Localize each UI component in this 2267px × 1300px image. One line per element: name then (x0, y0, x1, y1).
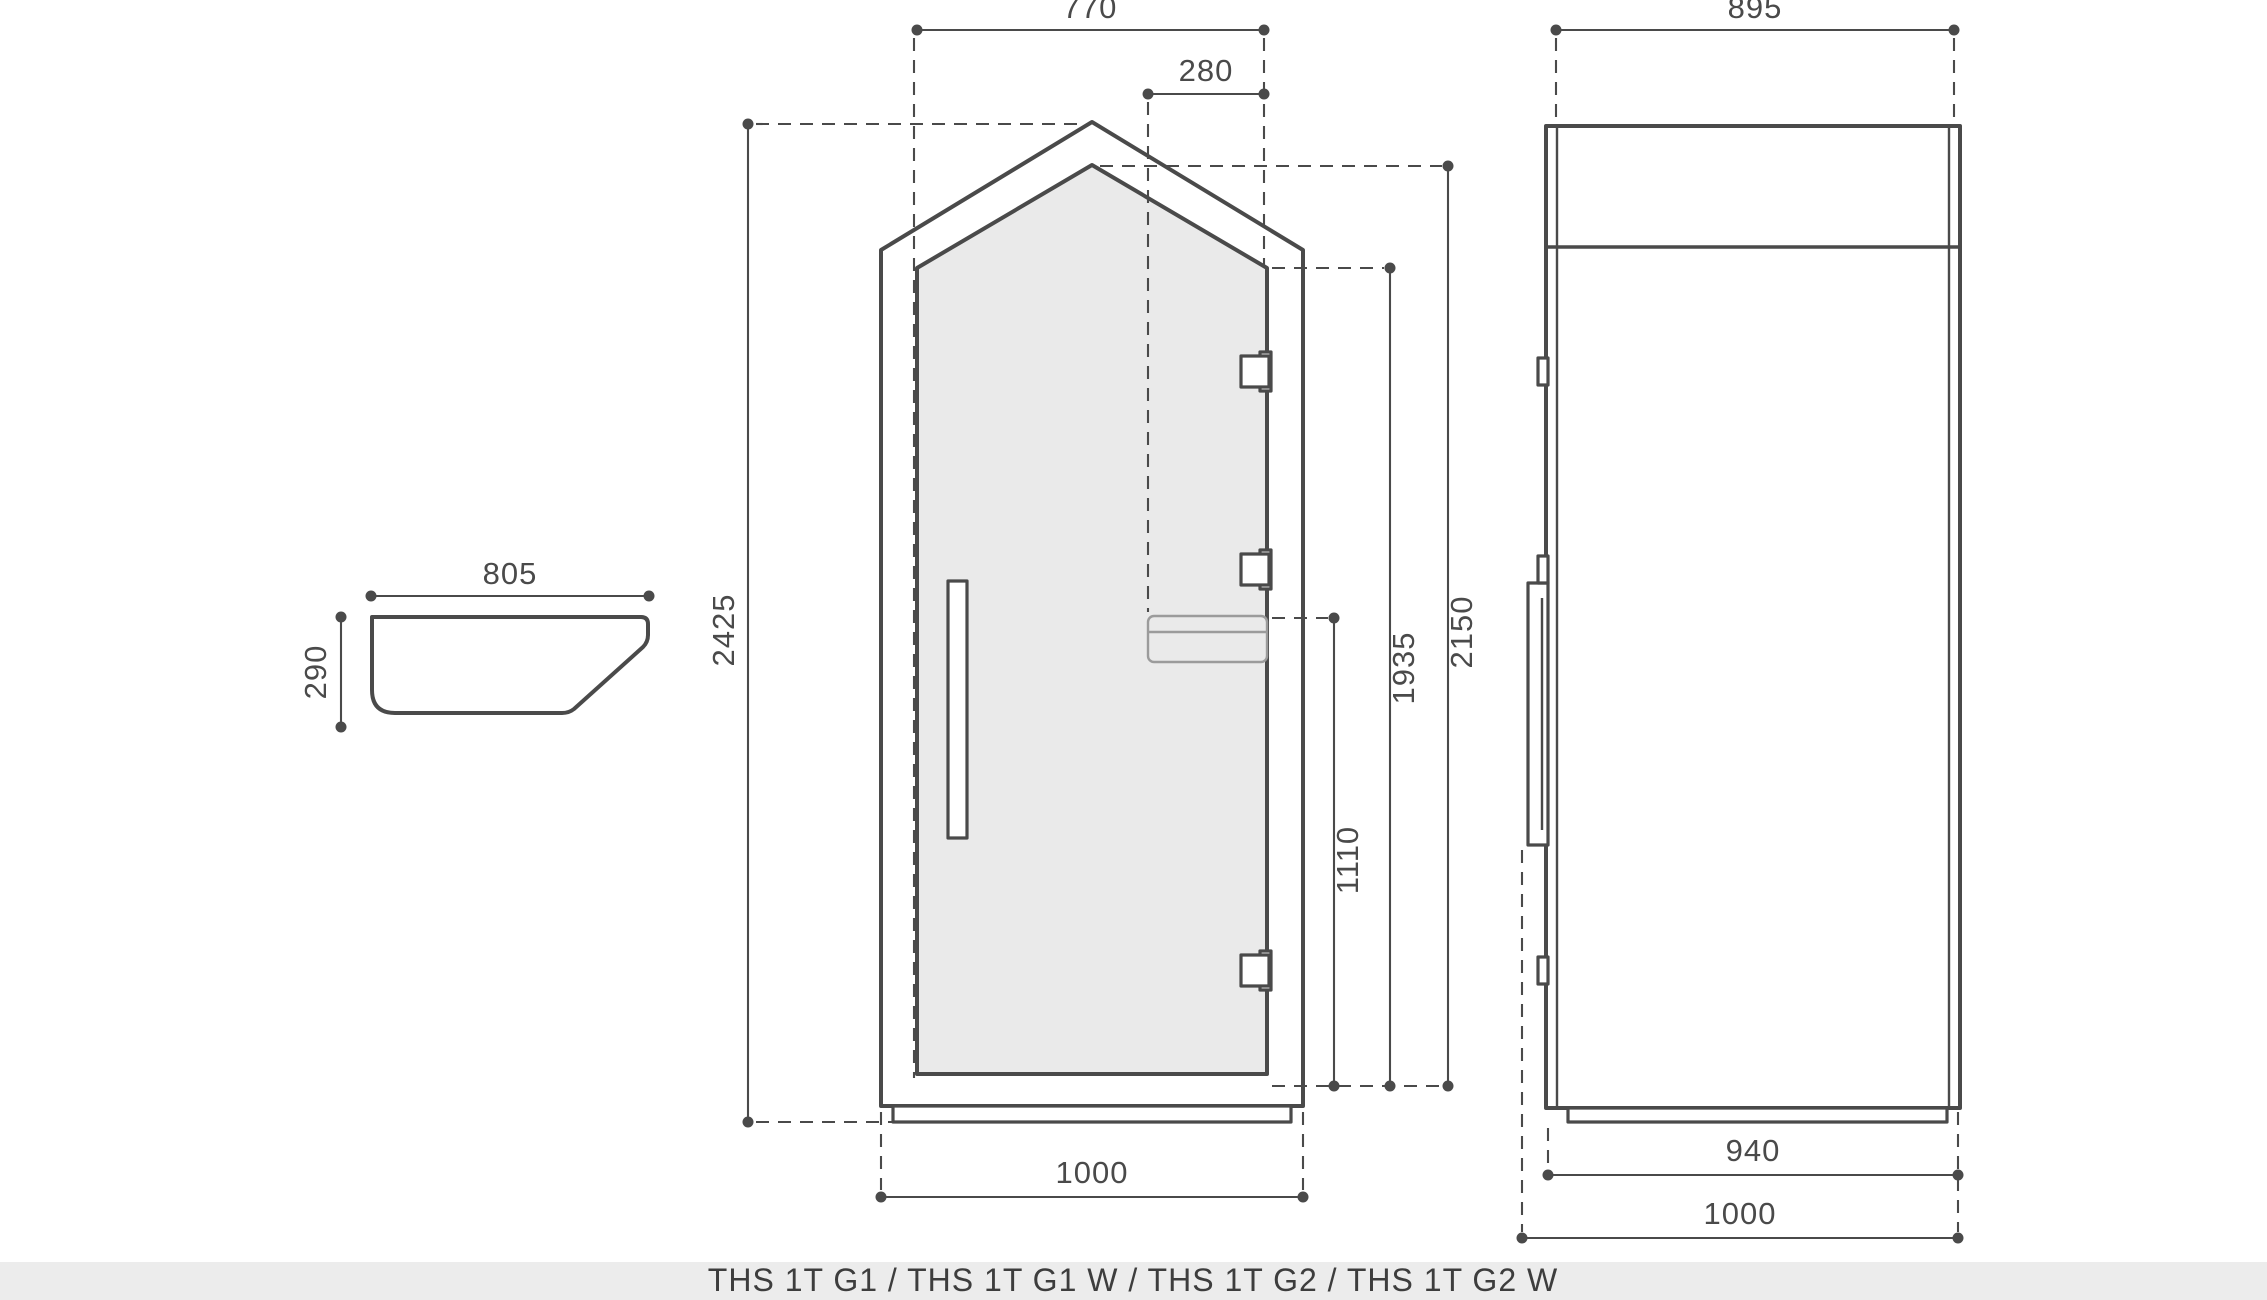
dim-endpoint (1517, 1233, 1528, 1244)
base-skid (893, 1106, 1291, 1122)
overall-width-label: 1000 (1056, 1155, 1129, 1190)
side-hinge-bottom (1538, 957, 1548, 984)
dim-endpoint (1949, 25, 1960, 36)
footer: THS 1T G1 / THS 1T G1 W / THS 1T G2 / TH… (0, 1262, 2267, 1300)
door-hinge-bottom (1241, 951, 1271, 990)
shelf-profile-view: 805 290 (298, 556, 655, 733)
shelf-profile-outline (372, 617, 648, 713)
reader-offset-label: 280 (1179, 53, 1234, 88)
dim-endpoint (1385, 263, 1396, 274)
side-outer-outline (1546, 126, 1960, 1108)
dim-endpoint (1329, 1081, 1340, 1092)
dim-endpoint (1551, 25, 1562, 36)
technical-drawing: 805 290 (0, 0, 2267, 1300)
hinge-plate (1241, 955, 1269, 986)
dim-endpoint (1143, 89, 1154, 100)
door-height-label: 1935 (1386, 632, 1421, 705)
model-names: THS 1T G1 / THS 1T G1 W / THS 1T G2 / TH… (708, 1262, 1558, 1298)
dim-endpoint (743, 1117, 754, 1128)
side-hinge-middle (1538, 556, 1548, 583)
dim-endpoint (1953, 1233, 1964, 1244)
overall-depth-label: 1000 (1704, 1196, 1777, 1231)
dim-endpoint (1543, 1170, 1554, 1181)
dim-endpoint (1953, 1170, 1964, 1181)
front-view: 770 280 2425 2150 1935 1110 (706, 0, 1479, 1203)
dim-endpoint (1298, 1192, 1309, 1203)
glass-apex-height-label: 2150 (1444, 596, 1479, 669)
dim-endpoint (336, 612, 347, 623)
dim-endpoint (1329, 613, 1340, 624)
side-base-skid (1568, 1108, 1947, 1122)
dim-endpoint (644, 591, 655, 602)
base-depth-label: 940 (1726, 1133, 1781, 1168)
dim-endpoint (912, 25, 923, 36)
dim-endpoint (1259, 89, 1270, 100)
dim-endpoint (1443, 161, 1454, 172)
roof-width-label: 770 (1063, 0, 1118, 25)
dim-endpoint (366, 591, 377, 602)
hinge-plate (1241, 554, 1269, 585)
dim-endpoint (1259, 25, 1270, 36)
side-door-handle (1528, 583, 1548, 845)
reader-height-label: 1110 (1330, 826, 1365, 894)
card-reader (1148, 616, 1267, 662)
card-reader-body (1148, 616, 1267, 662)
door-handle (948, 581, 967, 838)
dim-endpoint (743, 119, 754, 130)
handle-profile-outer (1528, 583, 1548, 845)
overall-height-label: 2425 (706, 594, 741, 667)
shelf-width-label: 805 (483, 556, 538, 591)
dim-endpoint (876, 1192, 887, 1203)
hinge-plate (1241, 356, 1269, 387)
door-hinge-top (1241, 352, 1271, 391)
door-hinge-middle (1241, 550, 1271, 589)
side-hinge-top (1538, 358, 1548, 385)
top-depth-label: 895 (1728, 0, 1783, 25)
dim-endpoint (336, 722, 347, 733)
dim-endpoint (1443, 1081, 1454, 1092)
shelf-depth-label: 290 (298, 645, 333, 700)
side-view: 895 940 1000 (1517, 0, 1964, 1244)
